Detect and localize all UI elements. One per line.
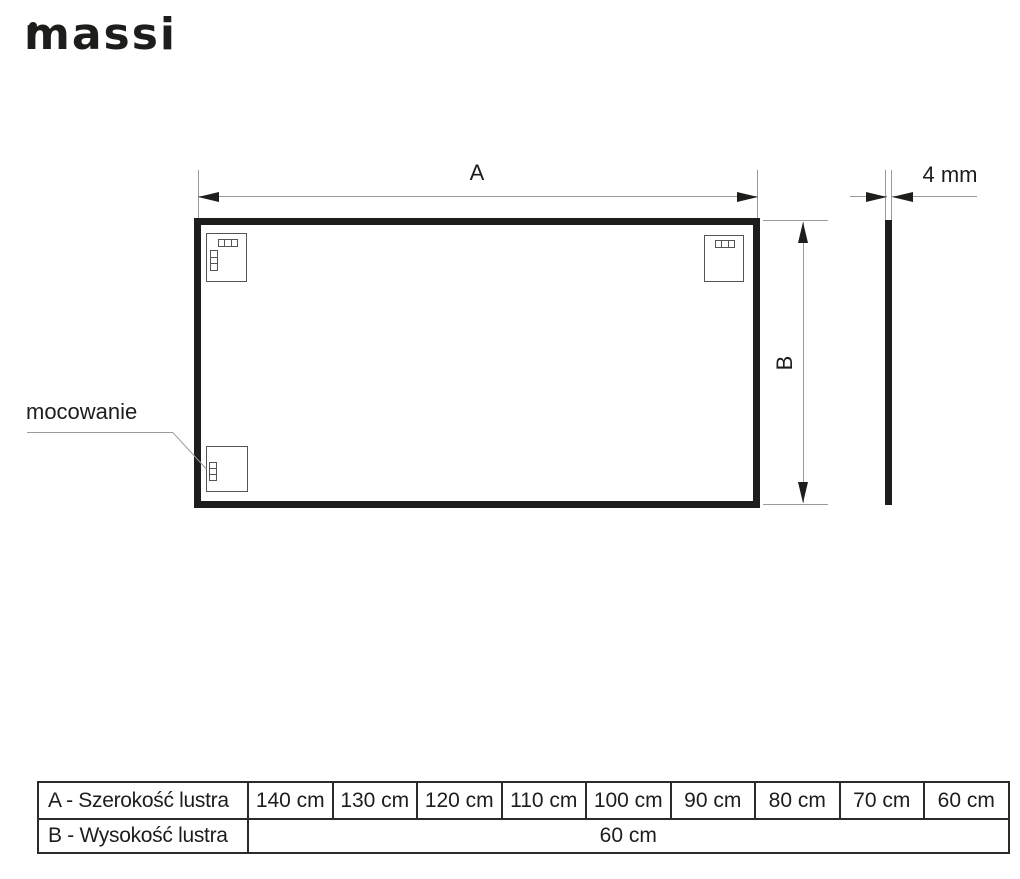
table-cell-width-value: 90 cm	[671, 782, 756, 819]
table-row-height-label: B - Wysokość lustra	[38, 819, 248, 853]
table-cell-height-value: 60 cm	[248, 819, 1009, 853]
thickness-arrowhead-right-icon	[866, 192, 887, 202]
table-row-width: A - Szerokość lustra 140 cm 130 cm 120 c…	[38, 782, 1009, 819]
dimension-b-arrowhead-down-icon	[798, 482, 808, 503]
thickness-label: 4 mm	[915, 162, 985, 188]
dimension-a-arrowhead-right-icon	[737, 192, 758, 202]
dimension-b-extension-line-top	[763, 220, 828, 221]
table-cell-width-value: 120 cm	[417, 782, 502, 819]
dimension-b-extension-line-bottom	[763, 504, 828, 505]
table-cell-width-value: 70 cm	[840, 782, 925, 819]
dimension-b-arrowhead-up-icon	[798, 222, 808, 243]
table-cell-width-value: 80 cm	[755, 782, 840, 819]
mirror-side-view	[885, 220, 892, 505]
dimension-b-line	[803, 222, 804, 503]
table-row-width-label: A - Szerokość lustra	[38, 782, 248, 819]
page: massi A mocowanie B 4 mm A - Szer	[0, 0, 1020, 879]
table-cell-width-value: 130 cm	[333, 782, 418, 819]
dimension-a-label: A	[437, 160, 517, 186]
size-table: A - Szerokość lustra 140 cm 130 cm 120 c…	[37, 781, 1010, 854]
dimension-b-label: B	[770, 348, 800, 378]
mounting-callout-leader-line	[27, 432, 173, 433]
table-cell-width-value: 60 cm	[924, 782, 1009, 819]
mounting-bracket-top-left-slot-horizontal	[218, 239, 238, 247]
mounting-bracket-top-right-slot-horizontal	[715, 240, 735, 248]
mounting-bracket-top-left-slot-vertical	[210, 250, 218, 271]
mirror-front-view	[194, 218, 760, 508]
table-cell-width-value: 110 cm	[502, 782, 587, 819]
mounting-callout-label: mocowanie	[26, 399, 137, 425]
brand-logo-dot-icon	[29, 22, 37, 30]
mounting-bracket-bottom-left-slot-vertical	[209, 462, 217, 481]
table-row-height: B - Wysokość lustra 60 cm	[38, 819, 1009, 853]
table-cell-width-value: 100 cm	[586, 782, 671, 819]
dimension-a-arrowhead-left-icon	[198, 192, 219, 202]
brand-logo: massi	[24, 11, 177, 59]
dimension-a-line	[198, 196, 758, 197]
table-cell-width-value: 140 cm	[248, 782, 333, 819]
thickness-arrowhead-left-icon	[892, 192, 913, 202]
